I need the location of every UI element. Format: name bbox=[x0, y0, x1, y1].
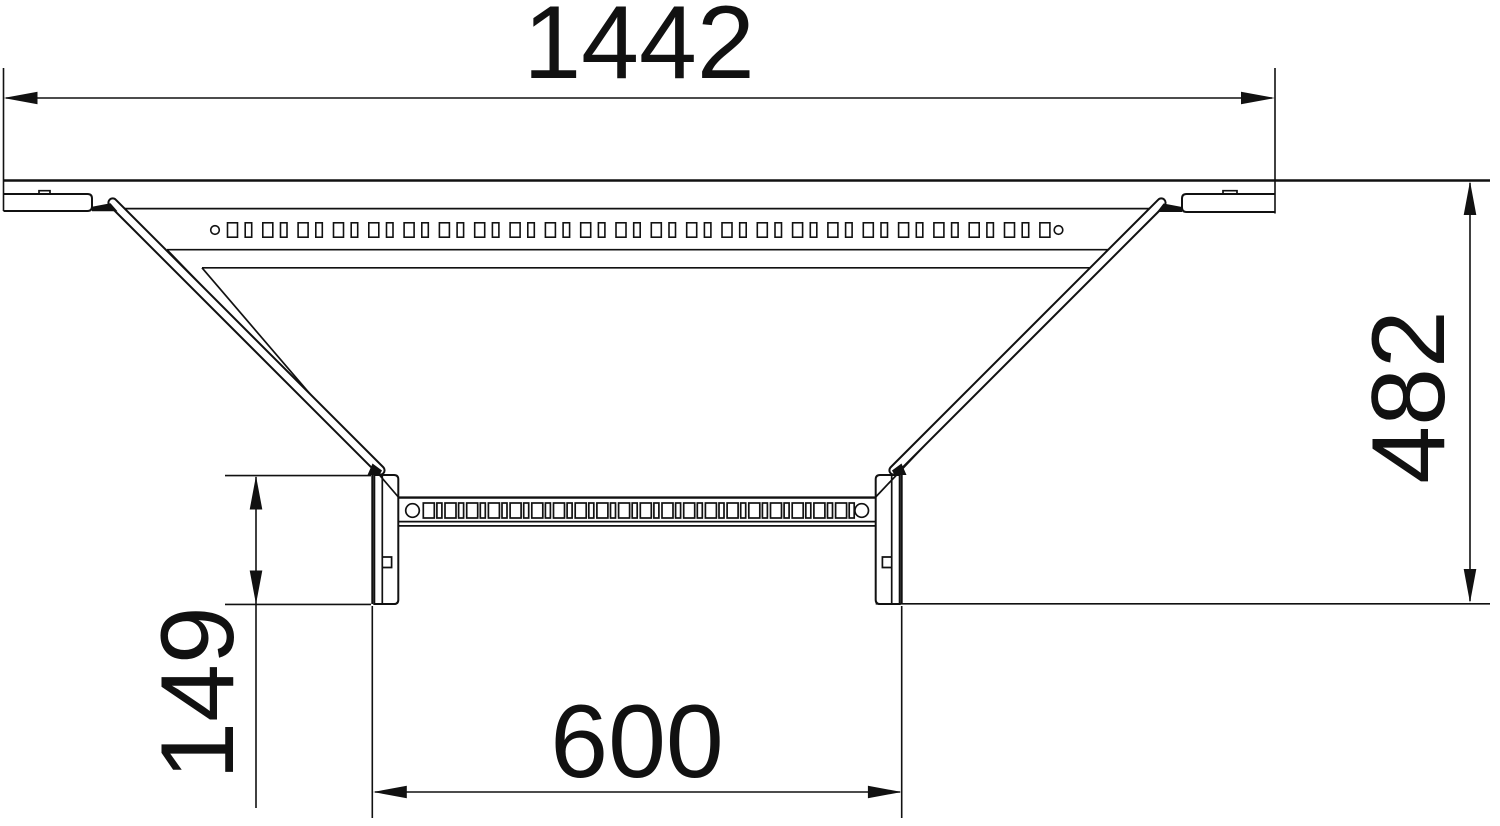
technical-drawing: 1442 482 149 600 bbox=[0, 0, 1500, 826]
perforation-hole bbox=[281, 223, 288, 237]
right-diagonal-rail bbox=[888, 197, 1168, 477]
left-coupler-outline bbox=[4, 194, 93, 211]
perforation-hole bbox=[749, 503, 760, 518]
perforation-hole bbox=[404, 223, 414, 237]
perforation-hole bbox=[762, 503, 767, 518]
perforation-hole bbox=[480, 503, 485, 518]
perforation-hole bbox=[445, 503, 456, 518]
branch-outlet bbox=[372, 475, 901, 604]
perforation-hole bbox=[705, 503, 716, 518]
perforation-hole bbox=[510, 223, 520, 237]
perforation-hole bbox=[849, 503, 854, 518]
right-coupler-outline bbox=[1182, 194, 1275, 212]
perforation-hole bbox=[488, 503, 499, 518]
perforation-hole bbox=[298, 223, 308, 237]
dim-branch-width-arrow-left bbox=[373, 786, 407, 799]
perforation-hole bbox=[563, 223, 570, 237]
perforation-hole bbox=[784, 503, 789, 518]
diagonal-rails bbox=[107, 197, 1168, 477]
perforation-hole bbox=[1005, 223, 1015, 237]
perforation-hole bbox=[369, 223, 379, 237]
dimension-label-right-height: 482 bbox=[1351, 310, 1467, 484]
perforation-hole bbox=[597, 503, 608, 518]
perforation-hole bbox=[654, 503, 659, 518]
perforation-hole bbox=[387, 223, 394, 237]
main-run-round-hole-left bbox=[211, 226, 220, 235]
perforation-hole bbox=[492, 223, 499, 237]
perforation-hole bbox=[598, 223, 605, 237]
perforation-hole bbox=[792, 503, 803, 518]
dimension-label-branch-width: 600 bbox=[550, 684, 724, 800]
perforation-hole bbox=[899, 223, 909, 237]
perforation-hole bbox=[828, 503, 833, 518]
dim-top-width-arrow-left bbox=[4, 92, 38, 105]
perforation-hole bbox=[806, 503, 811, 518]
dim-left-offset-arrow-top bbox=[250, 476, 263, 510]
branch-right-rail-notch bbox=[882, 557, 891, 568]
perforation-hole bbox=[334, 223, 344, 237]
dim-right-height-arrow-top bbox=[1464, 181, 1477, 215]
perforation-hole bbox=[632, 503, 637, 518]
perforation-hole bbox=[669, 223, 676, 237]
perforation-hole bbox=[422, 223, 429, 237]
branch-rung-round-hole-left bbox=[406, 504, 420, 518]
perforation-hole bbox=[814, 503, 825, 518]
perforation-hole bbox=[828, 223, 838, 237]
perforation-hole bbox=[589, 503, 594, 518]
perforation-hole bbox=[634, 223, 641, 237]
branch-left-rail-outline bbox=[374, 475, 398, 604]
perforation-hole bbox=[567, 503, 572, 518]
perforation-hole bbox=[662, 503, 673, 518]
branch-rung-perforation-holes bbox=[423, 503, 854, 518]
perforation-hole bbox=[581, 223, 591, 237]
perforation-hole bbox=[757, 223, 767, 237]
perforation-hole bbox=[502, 503, 507, 518]
dimension-label-left-offset: 149 bbox=[140, 606, 256, 780]
technical-drawing-page: 1442 482 149 600 bbox=[0, 0, 1500, 826]
perforation-hole bbox=[952, 223, 959, 237]
perforation-hole bbox=[793, 223, 803, 237]
perforation-hole bbox=[316, 223, 323, 237]
perforation-hole bbox=[863, 223, 873, 237]
perforation-hole bbox=[524, 503, 529, 518]
main-run-round-hole-right bbox=[1054, 226, 1063, 235]
main-run-perforation-holes bbox=[228, 223, 1050, 237]
perforation-hole bbox=[475, 223, 485, 237]
perforation-hole bbox=[228, 223, 238, 237]
main-run-perforation bbox=[211, 223, 1063, 237]
perforation-hole bbox=[969, 223, 979, 237]
perforation-hole bbox=[836, 503, 847, 518]
perforation-hole bbox=[554, 503, 565, 518]
perforation-hole bbox=[351, 223, 358, 237]
main-run bbox=[4, 181, 1491, 268]
perforation-hole bbox=[423, 503, 434, 518]
branch-rung bbox=[398, 498, 875, 526]
perforation-hole bbox=[741, 503, 746, 518]
perforation-hole bbox=[467, 503, 478, 518]
perforation-hole bbox=[528, 223, 535, 237]
perforation-hole bbox=[881, 223, 888, 237]
perforation-hole bbox=[846, 223, 853, 237]
perforation-hole bbox=[439, 223, 449, 237]
perforation-hole bbox=[697, 503, 702, 518]
perforation-hole bbox=[727, 503, 738, 518]
perforation-hole bbox=[704, 223, 711, 237]
perforation-hole bbox=[545, 223, 555, 237]
perforation-hole bbox=[245, 223, 252, 237]
dim-left-offset-arrow-bottom bbox=[250, 571, 263, 605]
perforation-hole bbox=[771, 503, 782, 518]
perforation-hole bbox=[934, 223, 944, 237]
perforation-hole bbox=[722, 223, 732, 237]
branch-rung-round-hole-right bbox=[855, 504, 869, 518]
branch-left-rail-notch bbox=[382, 557, 391, 568]
technical-drawing-fills: 1442 482 149 600 bbox=[4, 0, 1477, 800]
dim-top-width-arrow-right bbox=[1241, 92, 1275, 105]
perforation-hole bbox=[651, 223, 661, 237]
perforation-hole bbox=[611, 503, 616, 518]
perforation-hole bbox=[684, 503, 695, 518]
perforation-hole bbox=[1040, 223, 1050, 237]
perforation-hole bbox=[457, 223, 464, 237]
perforation-hole bbox=[510, 503, 521, 518]
perforation-hole bbox=[810, 223, 817, 237]
perforation-hole bbox=[616, 223, 626, 237]
left-diagonal-rail bbox=[107, 197, 387, 477]
perforation-hole bbox=[775, 223, 782, 237]
perforation-hole bbox=[619, 503, 630, 518]
dim-right-height-arrow-bottom bbox=[1464, 569, 1477, 603]
perforation-hole bbox=[676, 503, 681, 518]
perforation-hole bbox=[263, 223, 273, 237]
perforation-hole bbox=[687, 223, 697, 237]
perforation-hole bbox=[459, 503, 464, 518]
perforation-hole bbox=[640, 503, 651, 518]
perforation-hole bbox=[987, 223, 994, 237]
dimension-label-top-width: 1442 bbox=[523, 0, 754, 101]
dim-branch-width-arrow-right bbox=[868, 786, 902, 799]
perforation-hole bbox=[545, 503, 550, 518]
perforation-hole bbox=[1022, 223, 1028, 237]
perforation-hole bbox=[740, 223, 747, 237]
perforation-hole bbox=[437, 503, 442, 518]
web-diagonal-lines bbox=[167, 250, 1112, 497]
perforation-hole bbox=[916, 223, 923, 237]
perforation-hole bbox=[575, 503, 586, 518]
perforation-hole bbox=[719, 503, 724, 518]
perforation-hole bbox=[532, 503, 543, 518]
